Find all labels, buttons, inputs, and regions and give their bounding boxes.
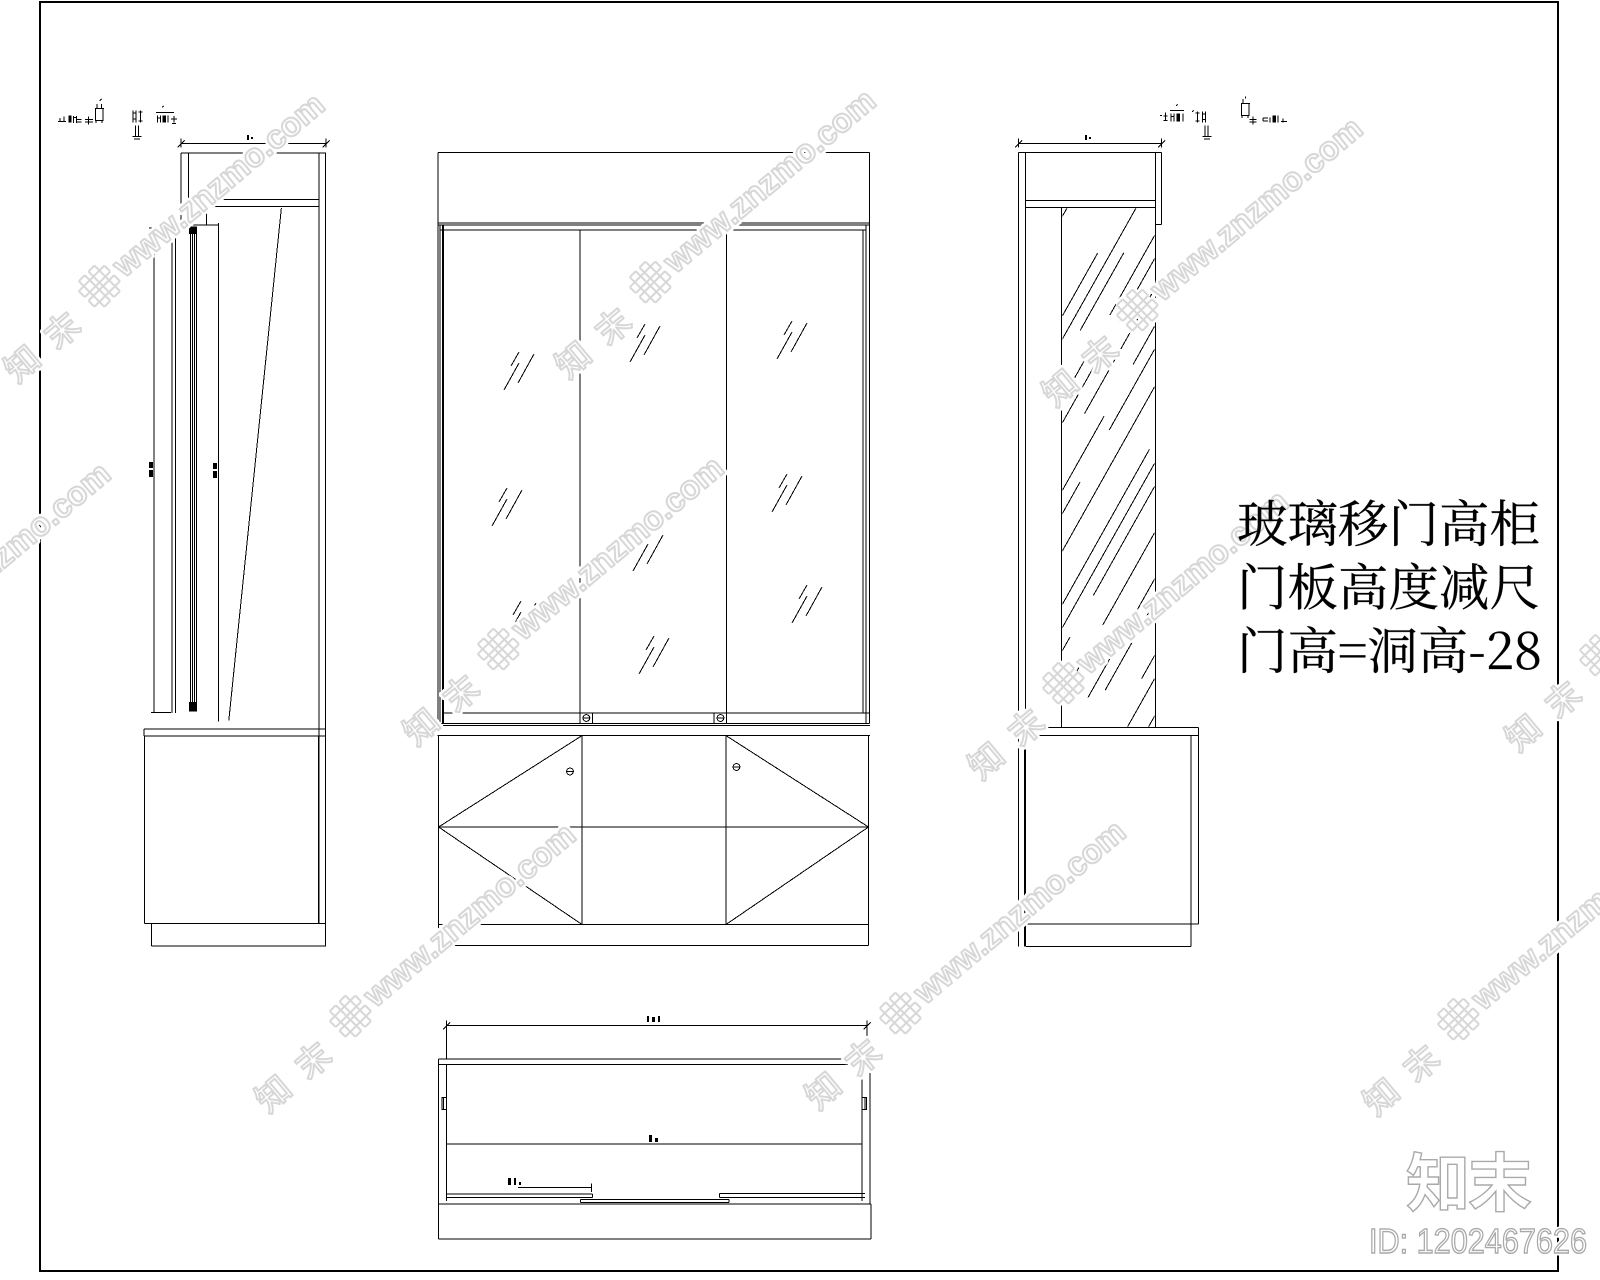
svg-text:ID: 1202467626: ID: 1202467626 [1369, 1222, 1587, 1261]
